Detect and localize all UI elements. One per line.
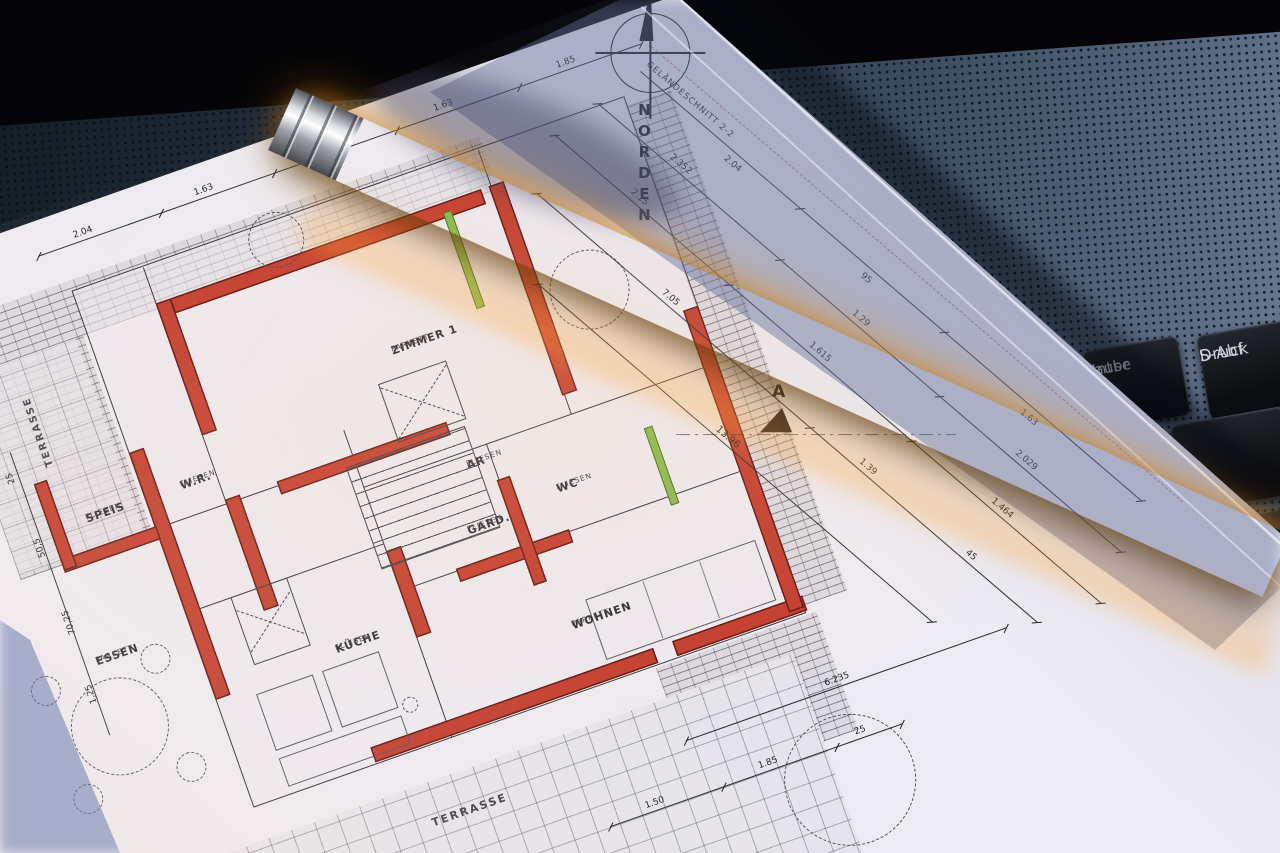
photo-scene: Pause Untbr Druck S-Abf TERRASSE TERRASS…	[0, 0, 1280, 853]
chair-dashed	[27, 672, 65, 710]
dining-table-dashed	[57, 664, 182, 789]
chair-dashed	[69, 780, 107, 818]
chair-dashed	[136, 640, 174, 678]
chair-dashed	[172, 748, 210, 786]
key-label: S-Abf	[1198, 340, 1245, 365]
keyboard-key-druck[interactable]: Druck S-Abf	[1196, 319, 1280, 419]
